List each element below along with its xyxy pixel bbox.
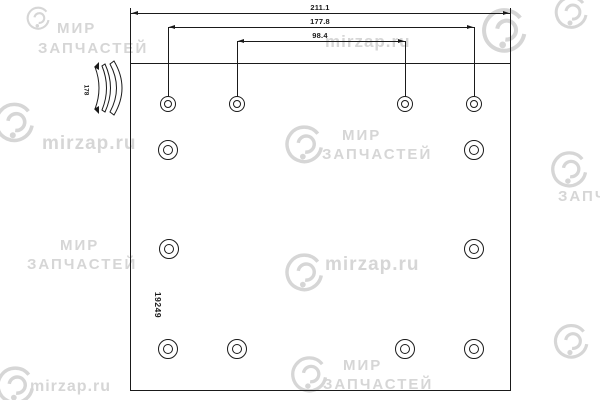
dim-arrow-right — [398, 39, 404, 43]
arc-arrow-top — [94, 62, 99, 70]
lining-plate-outline — [130, 63, 511, 391]
watermark-logo-icon — [551, 0, 591, 32]
watermark-brand-text: ЗАПЧАСТЕЙ — [38, 40, 148, 57]
dim-line-overall — [131, 13, 510, 14]
dim-value-outer-holes: 177.8 — [310, 17, 330, 26]
dim-arrow-left — [238, 39, 244, 43]
dim-value-inner-holes: 98.4 — [312, 31, 327, 40]
rivet-hole — [397, 96, 413, 112]
rivet-hole — [466, 96, 482, 112]
leader-line — [405, 41, 406, 97]
rivet-hole — [160, 96, 176, 112]
dim-arrow-left — [169, 25, 175, 29]
dim-arrow-right — [467, 25, 473, 29]
dim-value-overall: 211.1 — [310, 3, 329, 12]
watermark-brand-text: ЗАПЧАСТЕЙ — [558, 188, 600, 205]
brake-lining-drawing: МИР ЗАПЧАСТЕЙ mirzap.ru mirzap.ru МИР ЗА… — [0, 0, 600, 400]
rivet-hole-inner — [164, 100, 172, 108]
dim-arrow-left — [132, 11, 138, 15]
rivet-hole — [158, 339, 178, 359]
leader-line — [168, 27, 169, 96]
watermark-site-text: mirzap.ru — [30, 378, 111, 396]
rivet-hole-inner — [469, 244, 479, 254]
rivet-hole-inner — [469, 145, 479, 155]
rivet-hole-inner — [163, 145, 173, 155]
rivet-hole-inner — [232, 344, 242, 354]
watermark-site-text: mirzap.ru — [42, 133, 137, 155]
rivet-hole — [464, 140, 484, 160]
watermark-brand-text: МИР — [60, 237, 99, 254]
watermark-brand-text: ЗАПЧАСТЕЙ — [27, 256, 137, 273]
rivet-hole-inner — [400, 344, 410, 354]
rivet-hole-inner — [401, 100, 409, 108]
rivet-hole — [395, 339, 415, 359]
lining-curvature-side-view — [90, 60, 130, 116]
extension-line-left — [130, 8, 131, 63]
rivet-hole — [464, 339, 484, 359]
rivet-hole-inner — [469, 344, 479, 354]
watermark-logo-icon — [550, 320, 592, 362]
watermark-logo-icon — [547, 147, 591, 191]
arc-arrow-bottom — [94, 106, 99, 114]
rivet-hole-inner — [164, 244, 174, 254]
leader-line — [237, 41, 238, 97]
extension-line-right — [510, 8, 511, 63]
dim-arrow-right — [503, 11, 509, 15]
dim-line-outer-holes — [168, 27, 474, 28]
rivet-hole — [229, 96, 245, 112]
rivet-hole — [159, 239, 179, 259]
rivet-hole-inner — [163, 344, 173, 354]
watermark-brand-text: МИР — [57, 20, 96, 37]
rivet-hole — [464, 239, 484, 259]
leader-line — [474, 27, 475, 96]
watermark-logo-icon — [0, 98, 38, 146]
rivet-hole — [158, 140, 178, 160]
rivet-hole — [227, 339, 247, 359]
dim-line-inner-holes — [237, 41, 405, 42]
rivet-hole-inner — [470, 100, 478, 108]
rivet-hole-inner — [233, 100, 241, 108]
watermark-logo-icon — [24, 4, 52, 32]
